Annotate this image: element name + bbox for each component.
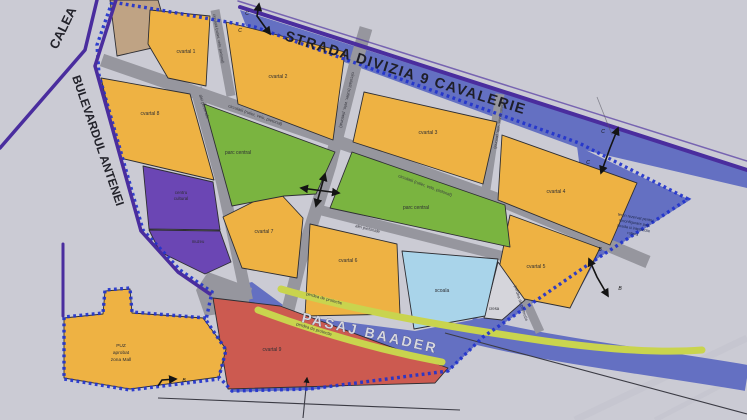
zone-label-puz: aprobat	[113, 350, 130, 356]
zone-label-cvartal-5: cvartal 5	[527, 264, 546, 270]
zone-label-cvartal-2: cvartal 2	[269, 74, 288, 80]
zone-label-centru-cultural: cultural	[174, 196, 189, 201]
puz-map: STRADA DIVIZIA 9 CAVALERIE CALEA BULEVAR…	[0, 0, 747, 420]
zone-label-cvartal-1: cvartal 1	[177, 49, 196, 55]
zone-label-cvartal-7: cvartal 7	[255, 229, 274, 235]
zoning-plan-photo: STRADA DIVIZIA 9 CAVALERIE CALEA BULEVAR…	[0, 0, 747, 420]
section-letter-c: C	[601, 129, 605, 135]
zone-label-cvartal-6: cvartal 6	[339, 258, 358, 264]
zone-label-cvartal-8: cvartal 8	[141, 111, 160, 117]
zone-label-cvartal-3: cvartal 3	[419, 130, 438, 136]
zone-label-cvartal-9: cvartal 9	[263, 347, 282, 353]
section-letter-c: C	[245, 11, 249, 17]
zone-label-puz: zona Mall	[111, 357, 132, 363]
section-letter-c: C	[586, 160, 590, 166]
section-letter-c: C	[238, 28, 242, 34]
zone-label-cresa: cresa	[489, 306, 500, 311]
zone-label-muzeu: muzeu	[192, 239, 205, 244]
zone-label-parc-central-east: parc central	[403, 205, 429, 211]
zone-label-centru-cultural: centru	[175, 190, 188, 195]
zone-label-puz: PUZ	[116, 343, 126, 349]
zone-label-scoala: scoala	[435, 288, 450, 294]
zone-label-cvartal-4: cvartal 4	[547, 189, 566, 195]
zone-label-parc-central-west: parc central	[225, 150, 251, 156]
